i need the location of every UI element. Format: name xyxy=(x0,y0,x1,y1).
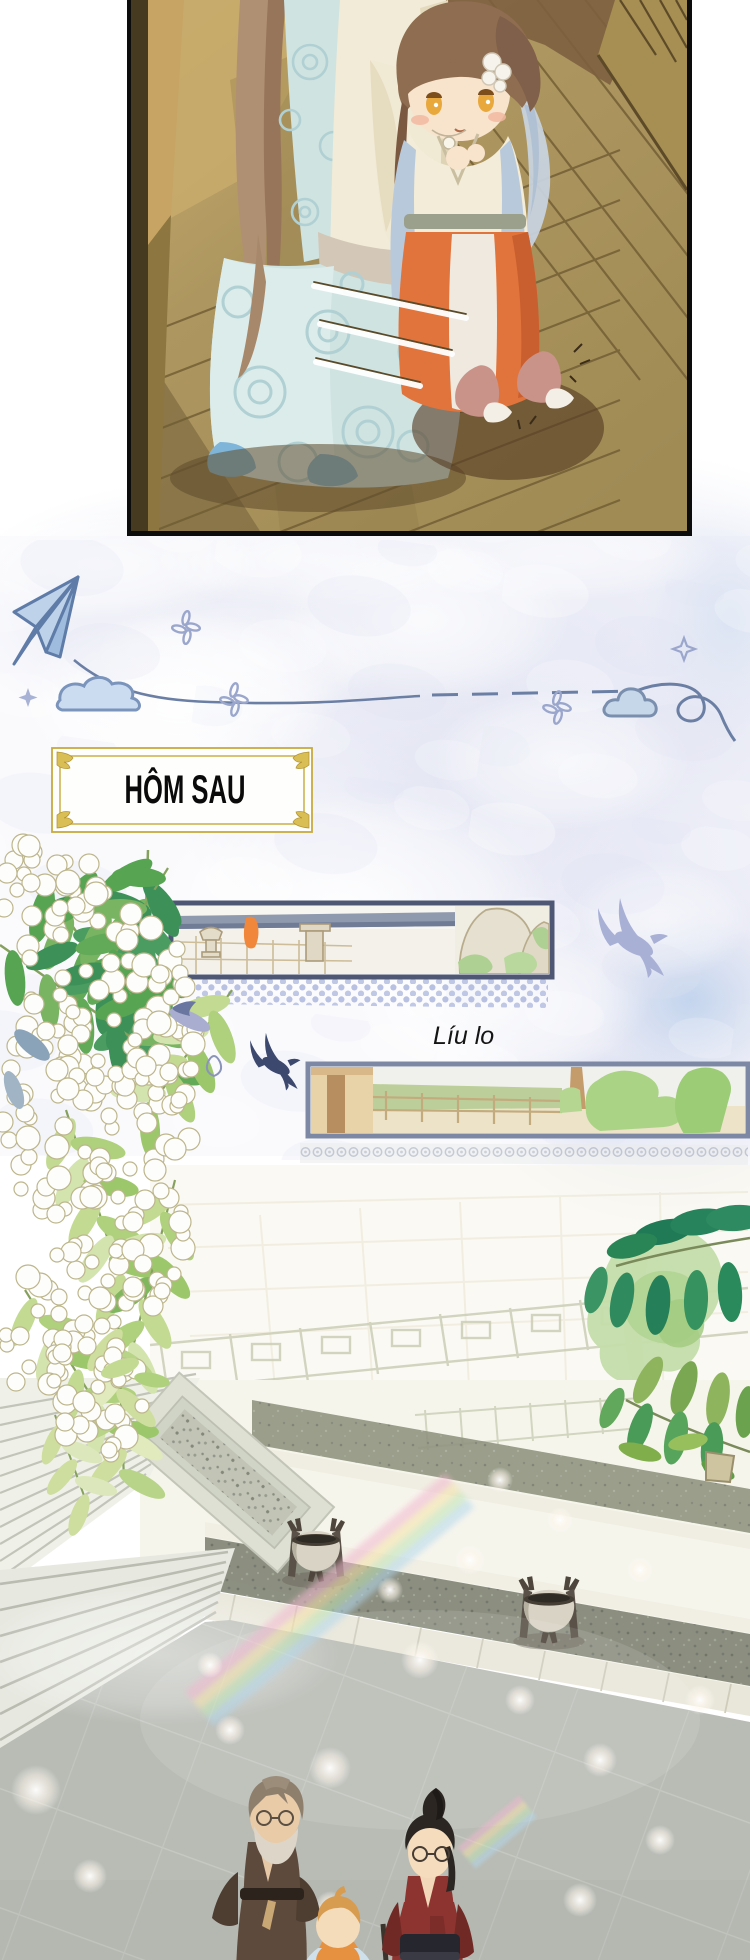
svg-text:HÔM SAU: HÔM SAU xyxy=(125,766,246,812)
svg-text:Líu lo: Líu lo xyxy=(433,1022,494,1050)
